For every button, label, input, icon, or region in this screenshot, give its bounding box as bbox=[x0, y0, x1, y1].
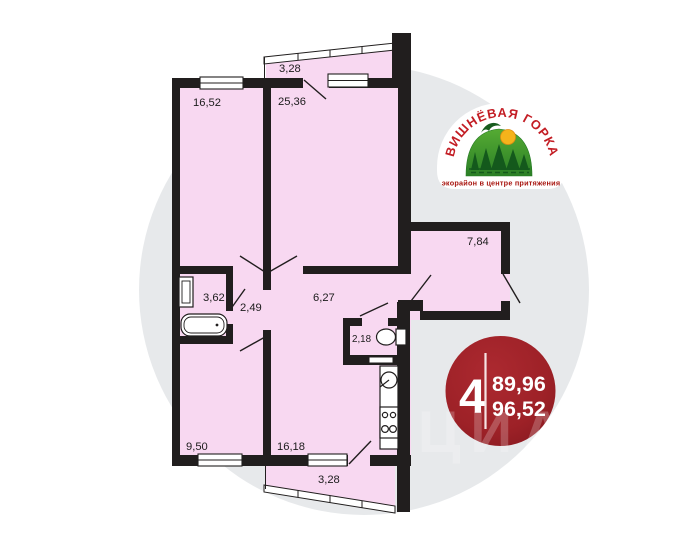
label-hallway-7-84: 7,84 bbox=[467, 236, 489, 248]
floorplan-svg: 16,52 25,36 3,28 7,84 3,62 2,49 6,27 2,1… bbox=[0, 0, 700, 536]
sun-icon bbox=[501, 130, 516, 145]
label-balcony-top: 3,28 bbox=[279, 63, 301, 75]
floorplan-image: 16,52 25,36 3,28 7,84 3,62 2,49 6,27 2,1… bbox=[0, 0, 700, 536]
label-corridor-6-27: 6,27 bbox=[313, 292, 335, 304]
toilet-bowl-icon bbox=[377, 329, 396, 345]
badge-area-top: 89,96 bbox=[492, 372, 546, 396]
label-room-16-52: 16,52 bbox=[193, 97, 221, 109]
logo-tagline: экорайон в центре притяжения bbox=[442, 179, 561, 188]
watermark: ЦИАН bbox=[418, 400, 626, 465]
label-balcony-bottom: 3,28 bbox=[318, 474, 340, 486]
label-wc-2-18: 2,18 bbox=[352, 334, 372, 345]
label-hall-2-49: 2,49 bbox=[240, 302, 262, 314]
toilet-tank-icon bbox=[396, 329, 406, 345]
label-room-9-50: 9,50 bbox=[186, 441, 208, 453]
label-room-25-36: 25,36 bbox=[278, 96, 306, 108]
label-kitchen-16-18: 16,18 bbox=[277, 441, 305, 453]
stove-icon bbox=[380, 407, 398, 438]
bathtub-drain bbox=[216, 324, 219, 327]
label-bathroom-3-62: 3,62 bbox=[203, 292, 225, 304]
